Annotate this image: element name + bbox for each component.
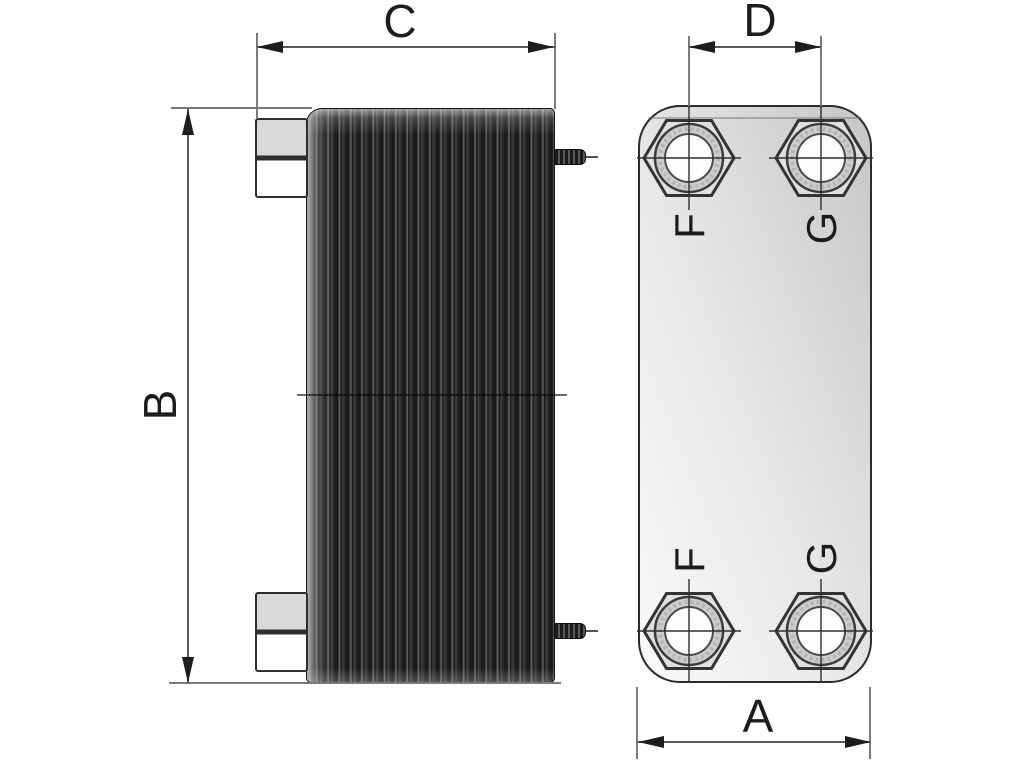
side-view-top-stud-centerline xyxy=(586,156,598,158)
dim-d-arrow-left xyxy=(689,41,715,53)
dim-b-extension-bottom xyxy=(169,682,561,684)
dim-a-label: A xyxy=(734,694,782,738)
side-view-top-hex-fitting xyxy=(255,118,308,198)
dim-b-label: B xyxy=(136,381,184,429)
side-view-mid-seam-line xyxy=(297,394,567,396)
port-bottom-right-graphic xyxy=(759,571,883,691)
port-label-top-right: G xyxy=(798,204,846,252)
port-label-top-left: F xyxy=(666,202,714,250)
port-top-right-graphic xyxy=(759,98,883,218)
dim-b-arrow-bottom xyxy=(182,657,194,683)
side-view-bottom-stud xyxy=(554,623,586,639)
port-label-bottom-right: G xyxy=(798,534,846,582)
port-bottom-left-graphic xyxy=(627,571,751,691)
port-label-bottom-left: F xyxy=(666,536,714,584)
dim-c-arrow-right xyxy=(528,41,554,53)
dim-d-label: D xyxy=(738,0,782,40)
dim-c-arrow-left xyxy=(257,41,283,53)
technical-drawing-canvas: C B D xyxy=(0,0,1024,768)
dim-a-arrow-right xyxy=(845,736,871,748)
dim-b-line xyxy=(187,109,189,683)
side-view-bottom-stud-centerline xyxy=(586,630,598,632)
dim-b-arrow-top xyxy=(182,109,194,135)
side-view-bottom-hex-fitting xyxy=(255,592,308,672)
dim-c-extension-right xyxy=(554,33,556,109)
dim-d-arrow-right xyxy=(795,41,821,53)
dim-a-arrow-left xyxy=(638,736,664,748)
port-top-left-graphic xyxy=(627,98,751,218)
dim-c-label: C xyxy=(378,0,422,42)
side-view-top-stud xyxy=(554,149,586,165)
dim-a-extension-left xyxy=(636,687,638,759)
dim-a-extension-right xyxy=(869,687,871,759)
